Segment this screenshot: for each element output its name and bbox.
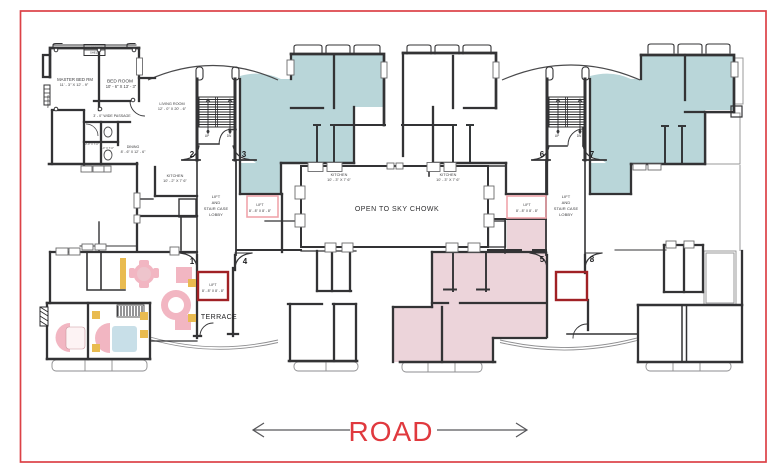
svg-text:ROAD: ROAD xyxy=(349,416,434,447)
svg-text:SERVICE: SERVICE xyxy=(46,95,50,108)
svg-text:DINING: DINING xyxy=(127,145,140,149)
svg-text:10' - 3" X 7' 6": 10' - 3" X 7' 6" xyxy=(436,178,460,182)
svg-text:2: 2 xyxy=(190,150,195,159)
svg-text:LOBBY: LOBBY xyxy=(559,212,573,217)
svg-text:AND: AND xyxy=(562,200,571,205)
svg-text:3: 3 xyxy=(242,150,247,159)
svg-text:4: 4 xyxy=(243,257,248,266)
svg-text:LOBBY: LOBBY xyxy=(209,212,223,217)
svg-text:8' - 8" X 8' - 8": 8' - 8" X 8' - 8" xyxy=(202,289,225,293)
svg-text:3' - 0" WIDE PASSAGE: 3' - 0" WIDE PASSAGE xyxy=(93,114,131,118)
svg-text:OPEN TO SKY CHOWK: OPEN TO SKY CHOWK xyxy=(355,206,439,213)
svg-text:10' - 6" X 13' - 3": 10' - 6" X 13' - 3" xyxy=(106,84,137,89)
svg-text:LIVING ROOM: LIVING ROOM xyxy=(159,102,184,106)
svg-text:STAIR CASE: STAIR CASE xyxy=(204,206,229,211)
svg-text:SHELF: SHELF xyxy=(90,51,99,55)
svg-text:8' - 8" X 8' - 8": 8' - 8" X 8' - 8" xyxy=(516,209,539,213)
svg-text:12' - 0" X 20' - 6": 12' - 0" X 20' - 6" xyxy=(158,107,187,111)
svg-text:TERRACE: TERRACE xyxy=(201,314,237,321)
svg-text:10' - 2" X 7' 6": 10' - 2" X 7' 6" xyxy=(163,179,187,183)
svg-text:5: 5 xyxy=(540,255,545,264)
svg-text:UP: UP xyxy=(555,134,559,138)
svg-text:6: 6 xyxy=(540,150,545,159)
svg-text:LIFT: LIFT xyxy=(209,283,217,287)
svg-text:DN: DN xyxy=(577,134,582,138)
svg-text:KITCHEN: KITCHEN xyxy=(440,173,457,177)
svg-text:11' - 3" X 12' - 9": 11' - 3" X 12' - 9" xyxy=(60,82,89,87)
svg-text:2'-0" X 7'-0": 2'-0" X 7'-0" xyxy=(85,142,99,146)
svg-text:KITCHEN: KITCHEN xyxy=(331,173,348,177)
svg-text:DN: DN xyxy=(227,134,232,138)
svg-text:LIFT: LIFT xyxy=(212,194,221,199)
svg-text:AND: AND xyxy=(212,200,221,205)
svg-text:LIFT: LIFT xyxy=(256,203,264,207)
svg-text:LIFT: LIFT xyxy=(562,194,571,199)
svg-text:1: 1 xyxy=(190,257,195,266)
svg-text:10' - 3" X 7' 6": 10' - 3" X 7' 6" xyxy=(327,178,351,182)
svg-text:WARDROBE: WARDROBE xyxy=(86,46,103,50)
svg-text:8: 8 xyxy=(590,255,595,264)
svg-text:LIFT: LIFT xyxy=(523,203,531,207)
svg-text:8' - 6" X 12' - 6": 8' - 6" X 12' - 6" xyxy=(121,150,146,154)
svg-text:8' - 8" X 8' - 8": 8' - 8" X 8' - 8" xyxy=(249,209,272,213)
svg-text:4'-0" X 7'-0": 4'-0" X 7'-0" xyxy=(100,146,114,150)
svg-text:7: 7 xyxy=(590,150,595,159)
svg-text:KITCHEN: KITCHEN xyxy=(167,174,184,178)
svg-text:UP: UP xyxy=(205,134,209,138)
svg-text:STAIR CASE: STAIR CASE xyxy=(554,206,579,211)
